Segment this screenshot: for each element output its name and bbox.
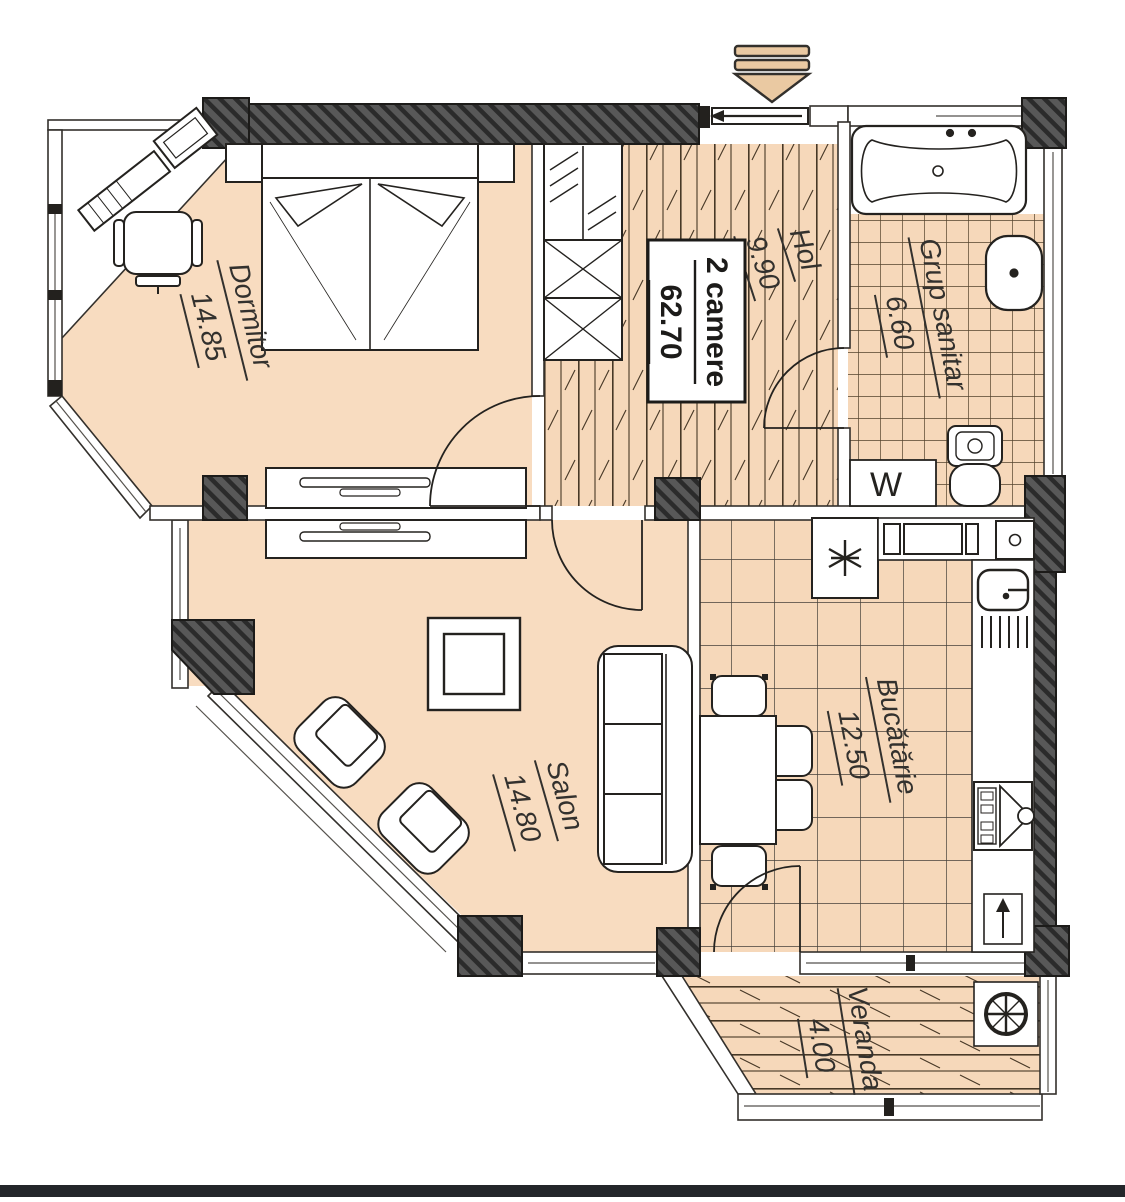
bathtub (852, 126, 1026, 214)
pillar-bedwall-left (203, 476, 247, 520)
bath-hol-wall-upper (838, 122, 850, 348)
bath-hol-wall-lower (838, 428, 850, 508)
kitchen-counter-right (972, 560, 1034, 952)
washing-machine-label: W (870, 466, 902, 504)
dresser-bedroom (266, 468, 526, 508)
dining-table (700, 716, 776, 844)
pillar-hol-bottom (655, 478, 700, 520)
pillar-salon-veranda (657, 928, 700, 976)
bed-headboard (262, 144, 478, 178)
bed (226, 144, 514, 350)
sofa (598, 646, 692, 872)
top-wall (205, 104, 699, 144)
door-entrance (700, 106, 808, 128)
entrance-arrow-icon (735, 46, 809, 102)
bathroom-sink (986, 236, 1042, 310)
apartment-title-box: 2 camere 62.70 (648, 240, 745, 402)
pillar-top-right (1022, 98, 1066, 148)
coffee-table (428, 618, 520, 710)
vent-pipe (984, 894, 1022, 944)
apartment-area: 62.70 (654, 284, 687, 359)
nightstand-left (226, 144, 262, 182)
washing-machine: W (850, 460, 936, 506)
wardrobe (544, 144, 622, 360)
apartment-type: 2 camere (700, 257, 733, 387)
bedroom-hol-wall (532, 144, 544, 396)
toilet (948, 426, 1002, 506)
footer-bar (0, 1185, 1125, 1197)
floor-plan: W (0, 0, 1125, 1197)
salon-door-jamb (540, 506, 552, 520)
dining-chair-top (712, 676, 766, 716)
dining-chair-bottom (712, 846, 766, 886)
floor-drain (974, 982, 1038, 1046)
kitchen-counter-top (878, 518, 1034, 560)
fridge (812, 518, 878, 598)
pillar-bay-bottom (458, 916, 522, 976)
stove (974, 782, 1034, 850)
nightstand-right (478, 144, 514, 182)
floor-plan-page: W (0, 0, 1125, 1197)
